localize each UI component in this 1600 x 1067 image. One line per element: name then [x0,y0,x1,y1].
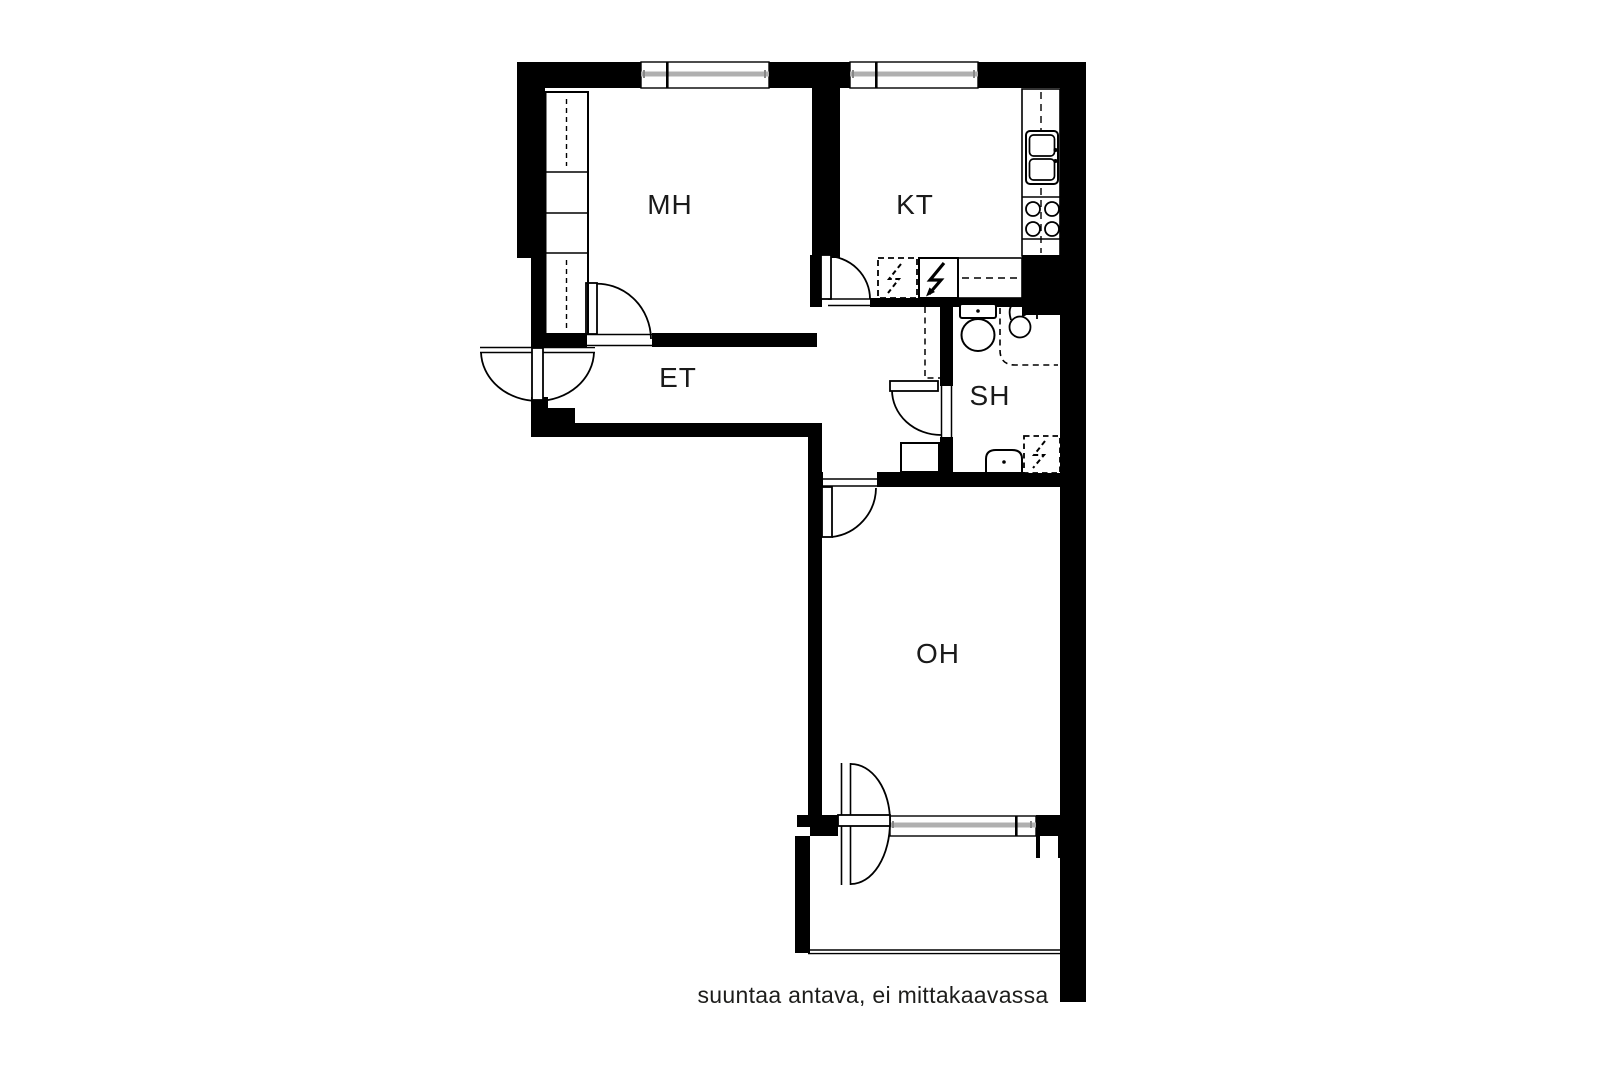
wall-notch [1040,836,1058,858]
floorplan-canvas: MH KT ET SH OH suuntaa antava, ei mittak… [0,0,1600,1067]
floorplan-drawing: MH KT ET SH OH suuntaa antava, ei mittak… [0,0,1600,1067]
window-icon [641,62,769,88]
disclaimer-caption: suuntaa antava, ei mittakaavassa [698,982,1049,1008]
vestibule-cabinet [901,443,939,472]
balcony-railing [808,950,1062,954]
sh-door-swing-icon [890,381,953,437]
room-label-kt: KT [896,189,934,220]
oh-door-swing-icon [822,472,877,537]
window-icon [890,816,1036,836]
kitchen-sink-icon [1026,131,1058,184]
toilet-icon [960,304,996,351]
mh-door-swing-icon [586,283,652,347]
soffit-dashed-line [925,307,940,378]
fridge-lightning-icon [919,258,958,298]
room-label-oh: OH [916,638,960,669]
entrance-door-swing-icon [480,348,595,402]
stove-icon [1026,202,1059,236]
room-label-et: ET [659,362,697,393]
walls [517,62,1086,1002]
kitchen-lower-counter [958,258,1022,298]
wardrobe-icon [546,92,589,334]
room-label-mh: MH [647,189,693,220]
washbasin-sink-icon [986,450,1022,473]
appliance-reservation-lightning-icon [878,258,917,298]
washing-machine-reservation-icon [1024,436,1060,473]
room-label-sh: SH [970,380,1011,411]
window-icon [850,62,978,88]
doors [480,255,953,885]
balcony-door-swing-icon [838,763,890,885]
shower-area-icon [1000,308,1058,365]
kt-door-swing-icon [821,255,870,307]
